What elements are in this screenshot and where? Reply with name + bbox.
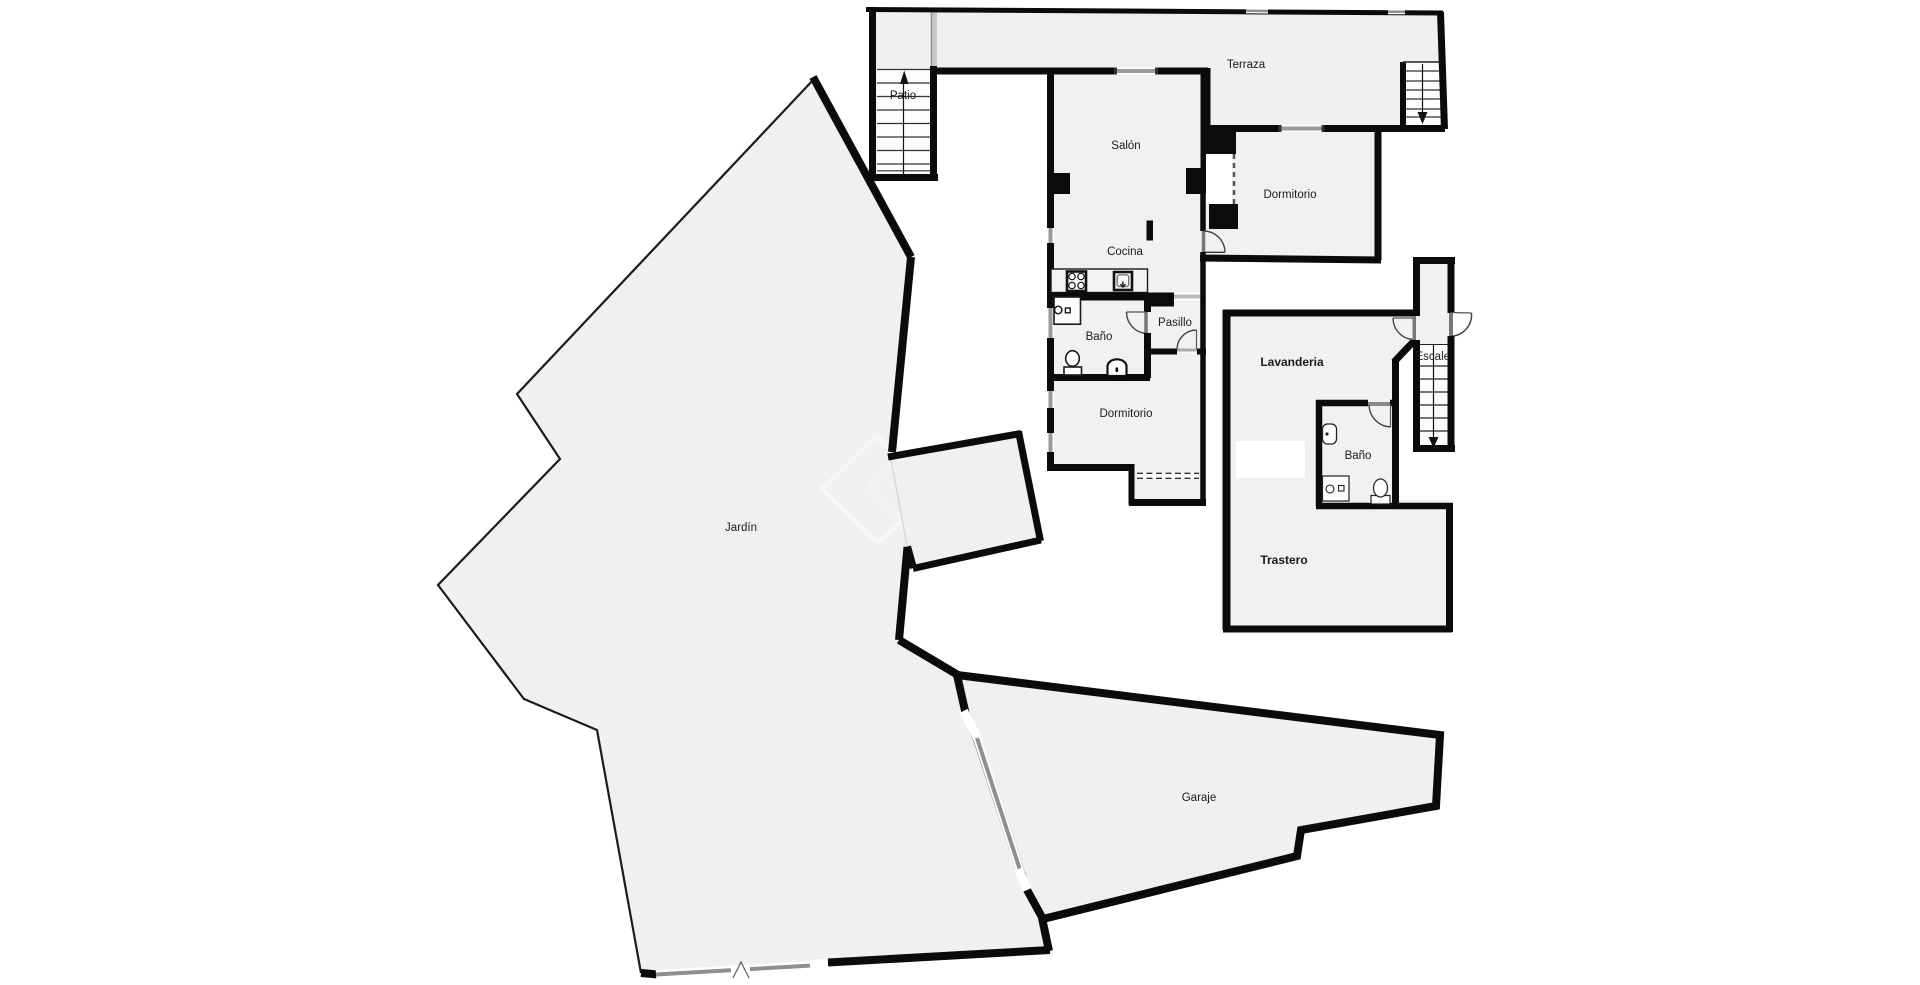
svg-text:Dormitorio: Dormitorio <box>1263 189 1316 201</box>
svg-text:Jardín: Jardín <box>725 522 757 534</box>
svg-text:Dormitorio: Dormitorio <box>1099 408 1152 420</box>
svg-text:Lavanderia: Lavanderia <box>1260 355 1324 369</box>
svg-text:Terraza: Terraza <box>1227 59 1266 71</box>
svg-text:Baño: Baño <box>1345 450 1372 462</box>
svg-text:Cocina: Cocina <box>1107 246 1143 258</box>
svg-text:Salón: Salón <box>1111 140 1140 152</box>
svg-text:Garaje: Garaje <box>1182 792 1217 804</box>
svg-text:Trastero: Trastero <box>1260 553 1307 567</box>
svg-text:Pasillo: Pasillo <box>1158 317 1192 329</box>
svg-text:Baño: Baño <box>1086 331 1113 343</box>
svg-text:Patio: Patio <box>890 90 916 102</box>
